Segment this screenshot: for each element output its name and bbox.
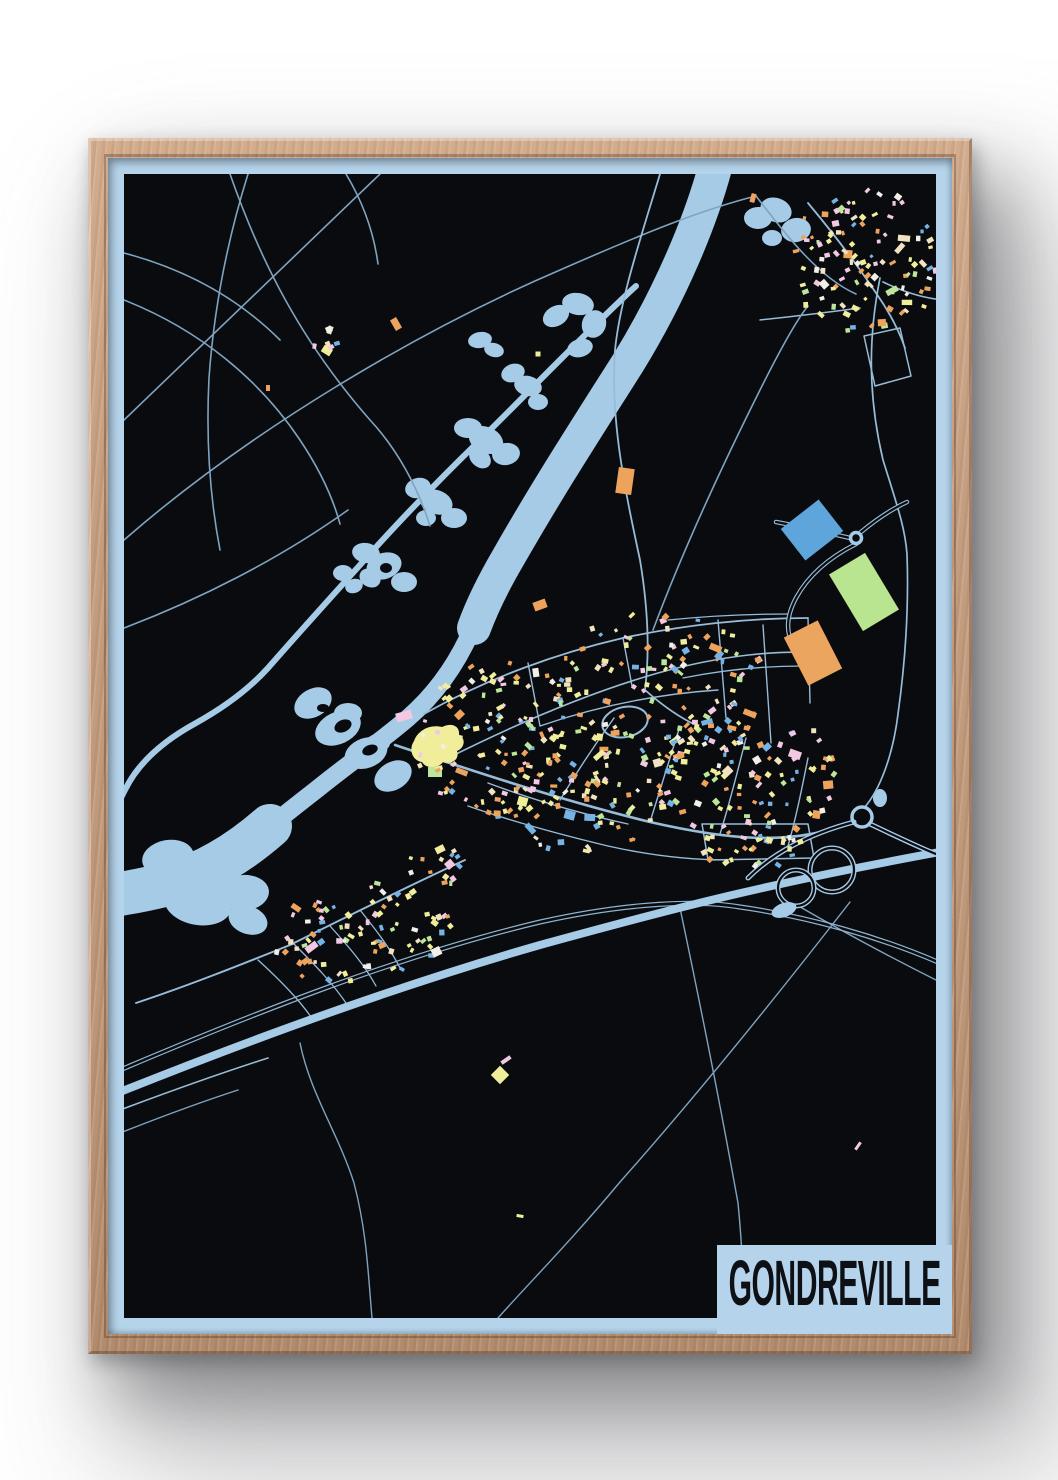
building [744,746,750,750]
building [313,960,317,964]
building [660,720,665,724]
lake-part [333,565,353,581]
building [294,946,299,950]
building [708,723,714,728]
building [804,238,810,242]
title-panel: GONDREVILLE [717,1245,952,1334]
building [550,784,557,787]
building [844,208,850,214]
building [737,793,742,796]
building [420,857,424,862]
building [669,642,673,647]
map-canvas [108,158,952,1334]
building [559,733,564,737]
building [831,304,836,310]
island [380,563,392,573]
building [875,229,879,234]
building [916,236,921,242]
building [318,929,321,933]
building [920,229,923,233]
building [559,700,563,706]
island [567,320,581,332]
building [721,629,725,634]
map-poster: GONDREVILLE [108,158,952,1334]
building [791,838,796,843]
building [494,810,501,816]
building [558,839,565,845]
building [336,938,342,944]
building [845,328,850,333]
photo-scene: GONDREVILLE [0,0,1058,1480]
building [785,802,789,806]
building [482,692,486,698]
building [795,770,799,774]
building [561,715,565,719]
building [567,687,573,692]
building [821,765,826,771]
building [342,939,346,942]
building [584,796,589,802]
building [504,753,507,756]
building [605,763,609,768]
building [613,798,616,804]
building [744,814,750,818]
building [373,949,378,954]
building [902,300,913,305]
building [575,729,581,734]
building [584,814,595,821]
building [932,267,940,274]
building [878,319,887,326]
building [695,618,700,622]
island [317,704,329,712]
building [823,780,834,789]
building [737,806,742,810]
building [674,758,678,762]
building [577,712,583,717]
building [321,962,327,967]
building [648,818,653,822]
building [344,923,349,929]
building [681,759,688,765]
building [803,302,808,308]
building [646,666,652,671]
building [545,673,550,678]
lake-part [528,394,548,410]
building [532,668,539,678]
building [666,735,671,739]
building [305,919,311,923]
building [598,820,603,825]
lake-part [391,572,417,592]
building [584,689,588,695]
building [659,804,667,811]
building [730,633,736,638]
building [557,684,561,687]
building [811,728,816,733]
building [529,717,533,722]
building [729,760,734,765]
building [755,657,761,662]
building [624,642,629,648]
building [672,684,677,689]
building [812,810,821,819]
building [661,659,667,665]
building [892,201,895,206]
building [850,325,856,330]
building [647,779,652,784]
building [836,230,841,235]
building [348,978,354,984]
building [898,235,911,242]
building [533,779,539,785]
building [710,835,715,840]
building [814,267,819,274]
building [680,639,687,645]
building [266,385,270,391]
building [723,753,726,757]
building [513,681,519,685]
building [473,726,480,732]
building [767,820,772,825]
building [820,268,825,274]
lake-part [762,230,782,246]
building [552,753,557,758]
building [692,720,698,725]
building [677,689,682,694]
building [632,665,639,670]
building [850,259,853,265]
building [538,843,542,848]
building [737,676,743,682]
building [626,792,631,797]
building [938,265,946,272]
building [803,216,807,220]
building [526,762,530,766]
lake-part [441,508,467,528]
building [665,626,670,632]
building [677,725,683,731]
building [439,929,444,935]
lake-part [136,872,180,904]
building [536,352,541,357]
building [768,802,773,806]
picture-frame: GONDREVILLE [88,138,972,1354]
building [819,257,824,262]
building [565,677,571,682]
building [570,789,575,793]
building [822,211,829,217]
building [366,919,370,925]
building [371,942,376,945]
building [602,722,609,728]
building [877,239,881,243]
building [564,682,570,686]
building [494,797,500,802]
building [640,668,645,674]
building [831,287,836,291]
building [435,730,440,735]
building [787,846,792,852]
poster-title: GONDREVILLE [728,1251,940,1315]
building [564,656,567,661]
building [611,731,616,736]
